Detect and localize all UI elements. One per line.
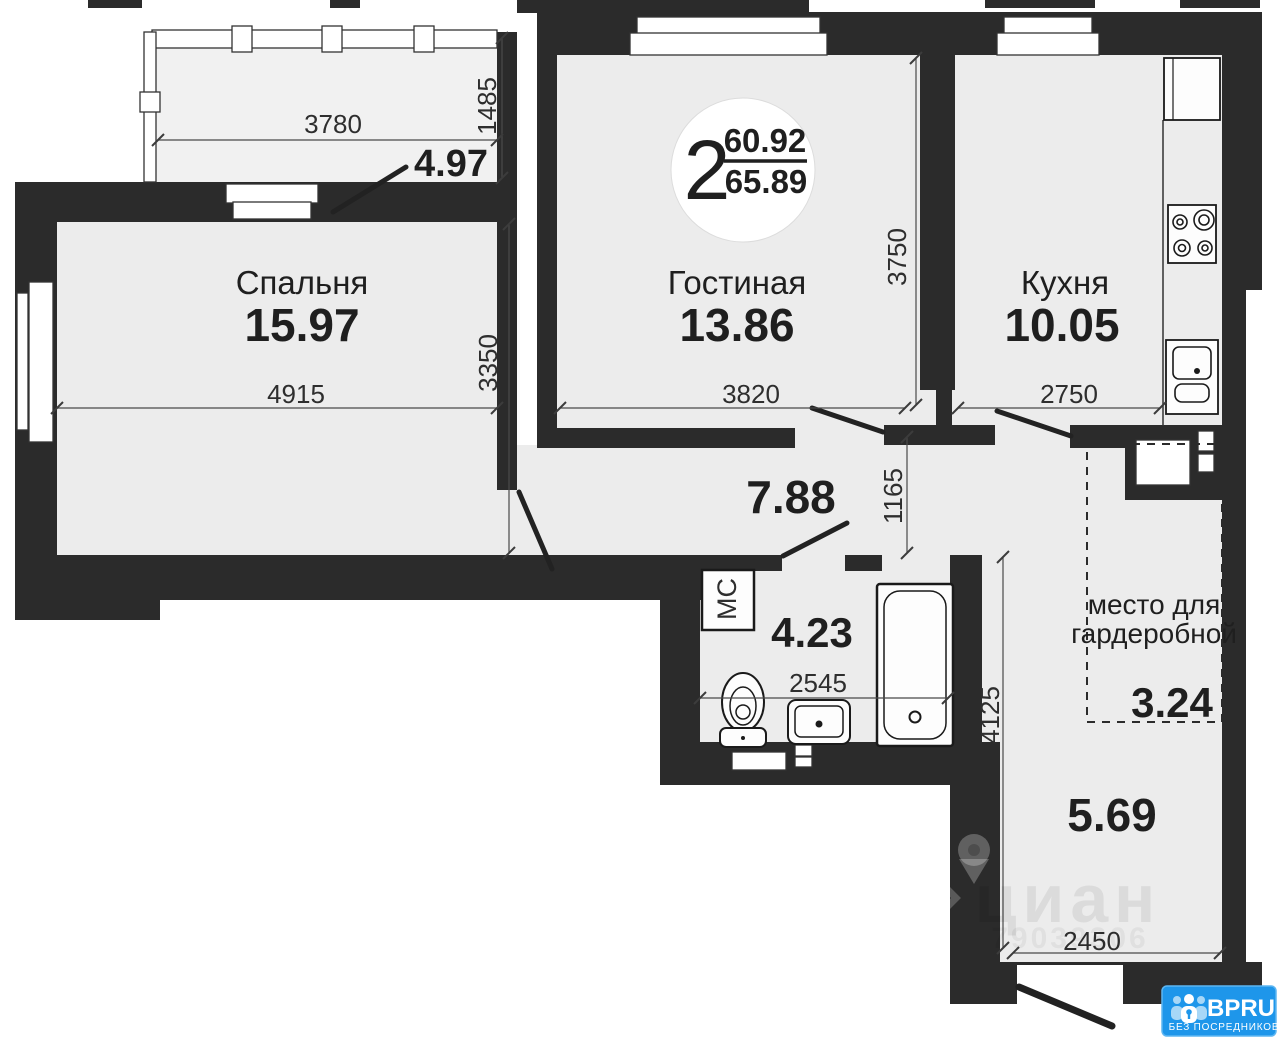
- kitchen-width-dim: 2750: [1040, 379, 1098, 409]
- kitchen-window: [1004, 17, 1092, 34]
- wall-segment: [660, 555, 782, 571]
- bathroom-type-label: МС: [712, 578, 742, 620]
- wall-segment: [537, 428, 795, 448]
- hallway-depth-dim: 1165: [878, 468, 908, 524]
- crop-artifact: [1180, 0, 1260, 8]
- toilet-icon: [736, 705, 750, 719]
- balcony-door-window: [233, 202, 311, 219]
- crop-artifact: [517, 0, 809, 13]
- wardrobe-label: место для: [1088, 589, 1221, 620]
- crop-artifact: [88, 0, 142, 8]
- hall-depth-dim: 4125: [975, 686, 1005, 744]
- kitchen-name-label: Кухня: [1021, 264, 1109, 301]
- vent-opening: [1198, 431, 1214, 451]
- bedroom-floor: [15, 182, 517, 600]
- living-room-window: [630, 33, 827, 55]
- bedroom-area-label: 15.97: [244, 299, 359, 351]
- wall-niche: [732, 752, 786, 770]
- people-icon: [1171, 994, 1207, 1023]
- bpru-tagline-label: БЕЗ ПОСРЕДНИКОВ: [1169, 1022, 1280, 1033]
- kitchen-window: [997, 33, 1099, 55]
- vent-opening: [1198, 454, 1214, 472]
- floor-plan-page: 3780 1485 4915 3350 3820 3750 2750 1165 …: [0, 0, 1280, 1038]
- living-depth-dim: 3750: [882, 228, 912, 286]
- bedroom-window: [29, 282, 53, 442]
- badge-living-area: 60.92: [724, 122, 807, 159]
- wall-segment: [15, 598, 160, 620]
- balcony-mullion: [414, 26, 434, 52]
- bathroom-area-label: 4.23: [771, 609, 853, 656]
- living-name-label: Гостиная: [668, 264, 807, 301]
- bpru-logo: BPRU БЕЗ ПОСРЕДНИКОВ: [1162, 986, 1279, 1036]
- balcony-mullion: [232, 26, 252, 52]
- wall-segment: [660, 742, 982, 785]
- wardrobe-area-label: 3.24: [1131, 679, 1213, 726]
- balcony-width-dim: 3780: [304, 109, 362, 139]
- toilet-tank-icon: [741, 736, 745, 740]
- location-pin-icon: [968, 844, 980, 856]
- living-width-dim: 3820: [722, 379, 780, 409]
- kitchen-sink-icon: [1175, 384, 1209, 402]
- badge-total-area: 65.89: [725, 163, 808, 200]
- wall-segment: [936, 385, 952, 428]
- wall-niche: [795, 757, 812, 767]
- bpru-brand-label: BPRU: [1207, 995, 1275, 1022]
- bedroom-depth-dim: 3350: [473, 334, 503, 392]
- wall-segment: [537, 12, 557, 448]
- balcony-mullion: [140, 92, 160, 112]
- bedroom-width-dim: 4915: [267, 379, 325, 409]
- wall-segment: [920, 55, 955, 390]
- washbasin-icon: [816, 721, 823, 728]
- wall-segment: [15, 555, 705, 600]
- bedroom-window: [17, 293, 28, 430]
- wall-segment: [845, 555, 882, 571]
- balcony-area-label: 4.97: [414, 143, 488, 185]
- kitchen-sink-icon: [1173, 347, 1211, 379]
- room-count-badge: 2 60.92 65.89: [671, 98, 815, 242]
- kitchen-area-label: 10.05: [1004, 299, 1119, 351]
- bathroom-width-dim: 2545: [789, 668, 847, 698]
- vent-opening: [1136, 440, 1190, 485]
- living-kitchen-floor: [537, 12, 1222, 448]
- balcony-mullion: [322, 26, 342, 52]
- wardrobe-label: гардеробной: [1071, 618, 1237, 649]
- bedroom-name-label: Спальня: [236, 264, 369, 301]
- kitchen-sink-icon: [1194, 368, 1200, 374]
- wall-segment: [1070, 425, 1125, 448]
- living-area-label: 13.86: [679, 299, 794, 351]
- hallway-area-label: 7.88: [746, 471, 836, 523]
- crop-artifact: [330, 0, 360, 8]
- wall-segment: [1222, 12, 1262, 290]
- living-room-window: [637, 17, 820, 34]
- kitchen-fixtures: [1163, 58, 1220, 426]
- entrance-opening: [1017, 965, 1123, 1007]
- floor-plan: 3780 1485 4915 3350 3820 3750 2750 1165 …: [0, 0, 1280, 1038]
- crop-artifact: [985, 0, 1095, 8]
- balcony-door-window: [226, 184, 318, 203]
- wall-niche: [795, 745, 812, 756]
- watermark-id: 79039306: [991, 922, 1148, 955]
- balcony-depth-dim: 1485: [472, 77, 502, 135]
- hall-area-label: 5.69: [1067, 789, 1157, 841]
